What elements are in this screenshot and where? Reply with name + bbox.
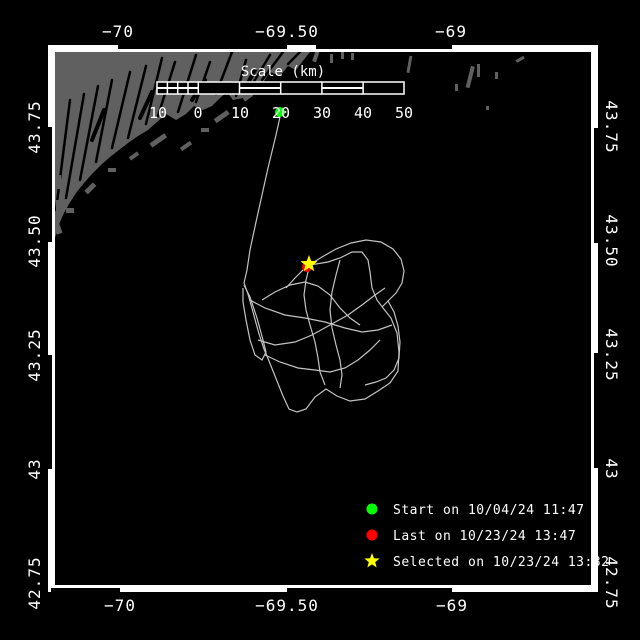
frame-right-bar	[591, 45, 598, 592]
bottom-tick-label: −69	[436, 596, 468, 615]
bottom-tick-label: −69.50	[255, 596, 319, 615]
scale-tick-label: 50	[395, 104, 413, 122]
scale-tick-label: 10	[231, 104, 249, 122]
scale-tick-label: 20	[272, 104, 290, 122]
bottom-tick-label: −70	[104, 596, 136, 615]
left-tick-label: 43.75	[25, 100, 44, 153]
right-tick-label: 43.50	[602, 214, 621, 267]
scale-bar-title: Scale (km)	[241, 64, 325, 80]
tracker-map-window: −70 −69.50 −69 −70 −69.50 −69 43.75 43.5…	[0, 0, 640, 640]
legend-item-start: Start on 10/04/24 11:47	[367, 503, 585, 518]
left-tick-label: 43.25	[25, 328, 44, 381]
legend-selected-label: Selected on 10/23/24 13:32	[393, 555, 610, 570]
top-tick-label: −69	[435, 22, 467, 41]
legend-last-label: Last on 10/23/24 13:47	[393, 529, 576, 544]
scale-tick-label: 10	[149, 104, 167, 122]
legend-start-label: Start on 10/04/24 11:47	[393, 503, 585, 518]
legend-item-last: Last on 10/23/24 13:47	[367, 529, 577, 544]
legend: Start on 10/04/24 11:47 Last on 10/23/24…	[364, 503, 609, 570]
right-tick-label: 43	[602, 458, 621, 479]
right-tick-label: 43.75	[602, 100, 621, 153]
right-tick-label: 43.25	[602, 328, 621, 381]
map-canvas[interactable]: −70 −69.50 −69 −70 −69.50 −69 43.75 43.5…	[0, 0, 640, 640]
scale-tick-label: 0	[193, 104, 202, 122]
last-legend-icon	[367, 530, 378, 541]
left-tick-label: 42.75	[25, 556, 44, 609]
top-tick-label: −69.50	[255, 22, 319, 41]
start-legend-icon	[367, 504, 378, 515]
scale-tick-label: 40	[354, 104, 372, 122]
legend-item-selected: Selected on 10/23/24 13:32	[364, 553, 609, 570]
top-tick-label: −70	[102, 22, 134, 41]
left-tick-label: 43	[25, 458, 44, 479]
left-tick-label: 43.50	[25, 214, 44, 267]
scale-tick-label: 30	[313, 104, 331, 122]
